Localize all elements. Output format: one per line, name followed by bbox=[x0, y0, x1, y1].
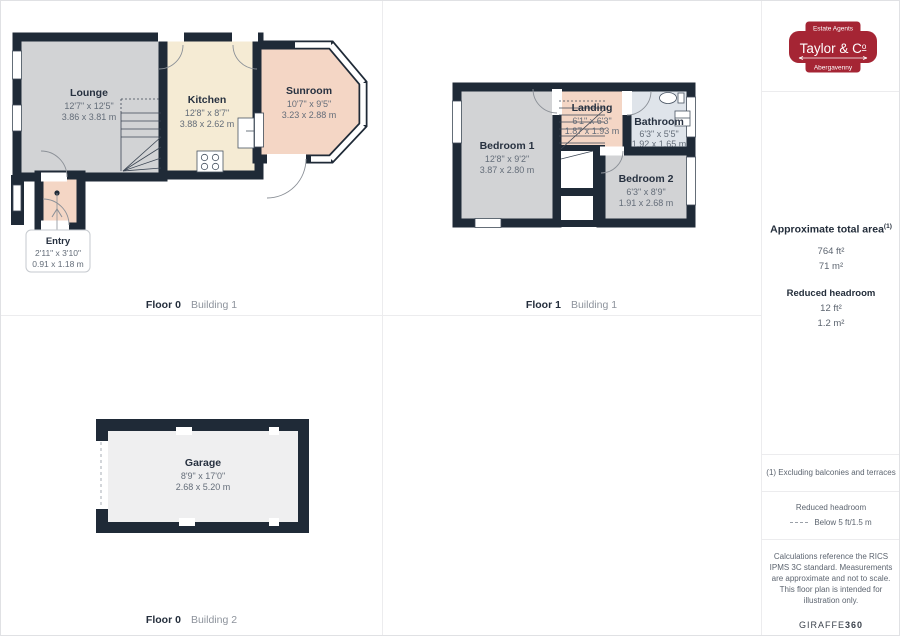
room-label-garage: Garage bbox=[185, 457, 221, 469]
room-dim-imperial: 6'1" x 6'3" bbox=[572, 116, 611, 126]
room-dim-metric: 3.88 x 2.62 m bbox=[180, 119, 235, 129]
total-area-title: Approximate total area(1) bbox=[762, 223, 900, 236]
plan-floor0-building2: Garage 8'9" x 17'0" 2.68 x 5.20 m bbox=[1, 315, 382, 636]
total-area-title-text: Approximate total area bbox=[770, 224, 884, 236]
door-gap bbox=[158, 33, 184, 42]
divider-sidebar-1 bbox=[762, 91, 900, 92]
door-gap bbox=[41, 221, 69, 230]
wall-notch bbox=[176, 427, 192, 435]
window bbox=[13, 51, 22, 79]
agency-logo: Estate Agents Taylor & Co Abergavenny bbox=[773, 15, 893, 79]
sink-icon bbox=[660, 93, 685, 104]
room-dim-metric: 3.23 x 2.88 m bbox=[282, 110, 337, 120]
plan-floor1-building1: Bedroom 1 12'8" x 9'2" 3.87 x 2.80 m Lan… bbox=[382, 1, 761, 315]
logo-location: Abergavenny bbox=[814, 65, 853, 72]
room-dim-metric: 3.87 x 2.80 m bbox=[480, 165, 535, 175]
room-label-bedroom2: Bedroom 2 bbox=[619, 173, 674, 185]
stairwell bbox=[553, 145, 605, 227]
wall-notch bbox=[179, 518, 195, 526]
room-label-entry: Entry bbox=[46, 236, 71, 247]
window bbox=[687, 157, 696, 205]
disclaimer-block: Calculations reference the RICS IPMS 3C … bbox=[762, 551, 900, 630]
stove-icon bbox=[197, 151, 223, 172]
room-label-bathroom: Bathroom bbox=[634, 116, 684, 128]
logo-name: Taylor & Co bbox=[800, 41, 867, 56]
window bbox=[255, 113, 264, 147]
logo-tagline: Estate Agents bbox=[813, 26, 854, 33]
total-area-m: 71 m² bbox=[762, 259, 900, 274]
divider-sidebar-4 bbox=[762, 539, 900, 540]
building-number: Building 2 bbox=[191, 614, 237, 626]
floorplan-sheet: Entry 2'11" x 3'10" 0.91 x 1.18 m Lounge… bbox=[0, 0, 900, 636]
floor-number: Floor 1 bbox=[526, 299, 561, 311]
building-number: Building 1 bbox=[571, 299, 617, 311]
room-dim-imperial: 12'8" x 9'2" bbox=[485, 154, 529, 164]
reduced-headroom-title: Reduced headroom bbox=[762, 288, 900, 299]
room-dim-metric: 2.68 x 5.20 m bbox=[176, 482, 231, 492]
room-dim-metric: 0.91 x 1.18 m bbox=[32, 259, 84, 269]
floor-label-1: Floor 0 Building 1 bbox=[1, 299, 382, 311]
plan-floor0-building1: Entry 2'11" x 3'10" 0.91 x 1.18 m Lounge… bbox=[1, 1, 382, 315]
room-dim-metric: 1.91 x 2.68 m bbox=[619, 198, 674, 208]
area-summary: Approximate total area(1) 764 ft² 71 m² … bbox=[762, 223, 900, 331]
room-label-lounge: Lounge bbox=[70, 87, 108, 99]
floor-label-3: Floor 0 Building 2 bbox=[1, 614, 382, 626]
window bbox=[453, 101, 462, 143]
room-label-landing: Landing bbox=[572, 102, 613, 114]
room-dim-imperial: 12'8" x 8'7" bbox=[185, 108, 229, 118]
room-dim-metric: 3.86 x 3.81 m bbox=[62, 112, 117, 122]
room-entry bbox=[39, 175, 81, 227]
dashed-line-sample bbox=[790, 522, 808, 523]
room-dim-metric: 1.87 x 1.93 m bbox=[565, 126, 620, 136]
divider-sidebar-3 bbox=[762, 491, 900, 492]
wall-notch bbox=[269, 518, 279, 526]
divider-sidebar-2 bbox=[762, 454, 900, 455]
disclaimer-text: Calculations reference the RICS IPMS 3C … bbox=[769, 551, 893, 606]
window bbox=[13, 185, 21, 211]
total-area-ft: 764 ft² bbox=[762, 244, 900, 259]
credit-prefix: GIRAFFE bbox=[799, 620, 845, 630]
window bbox=[13, 105, 22, 131]
building-number: Building 1 bbox=[191, 299, 237, 311]
floor-number: Floor 0 bbox=[146, 614, 181, 626]
legend-label: Below 5 ft/1.5 m bbox=[814, 518, 871, 527]
room-label-kitchen: Kitchen bbox=[188, 94, 227, 106]
room-dim-metric: 1.92 x 1.65 m bbox=[632, 139, 687, 149]
room-label-sunroom: Sunroom bbox=[286, 85, 332, 97]
door-gap bbox=[622, 91, 632, 115]
legend-title: Reduced headroom bbox=[762, 503, 900, 512]
window bbox=[475, 219, 501, 228]
room-dim-imperial: 6'3" x 5'5" bbox=[639, 129, 678, 139]
floor-number: Floor 0 bbox=[146, 299, 181, 311]
room-dim-imperial: 2'11" x 3'10" bbox=[35, 248, 81, 258]
reduced-headroom-ft: 12 ft² bbox=[762, 301, 900, 316]
kitchen-unit-icon bbox=[238, 118, 254, 148]
footnote-marker: (1) bbox=[884, 223, 892, 230]
credit-suffix: 360 bbox=[845, 620, 863, 630]
room-label-bedroom1: Bedroom 1 bbox=[480, 140, 535, 152]
door-gap bbox=[41, 173, 67, 182]
wall-notch bbox=[269, 427, 279, 435]
credit-logo: GIRAFFE360 bbox=[762, 620, 900, 630]
reduced-headroom-m: 1.2 m² bbox=[762, 316, 900, 331]
footnote-exclusions: (1) Excluding balconies and terraces bbox=[762, 468, 900, 477]
floor-label-2: Floor 1 Building 1 bbox=[382, 299, 761, 311]
door-gap bbox=[232, 33, 258, 42]
entry-callout: Entry 2'11" x 3'10" 0.91 x 1.18 m bbox=[26, 230, 90, 272]
door-gap bbox=[552, 89, 562, 115]
headroom-legend: Reduced headroom Below 5 ft/1.5 m bbox=[762, 503, 900, 527]
room-dim-imperial: 8'9" x 17'0" bbox=[181, 471, 225, 481]
room-dim-imperial: 6'3" x 8'9" bbox=[626, 187, 665, 197]
room-dim-imperial: 12'7" x 12'5" bbox=[64, 101, 113, 111]
door-gap bbox=[600, 147, 624, 156]
room-dim-imperial: 10'7" x 9'5" bbox=[287, 99, 331, 109]
